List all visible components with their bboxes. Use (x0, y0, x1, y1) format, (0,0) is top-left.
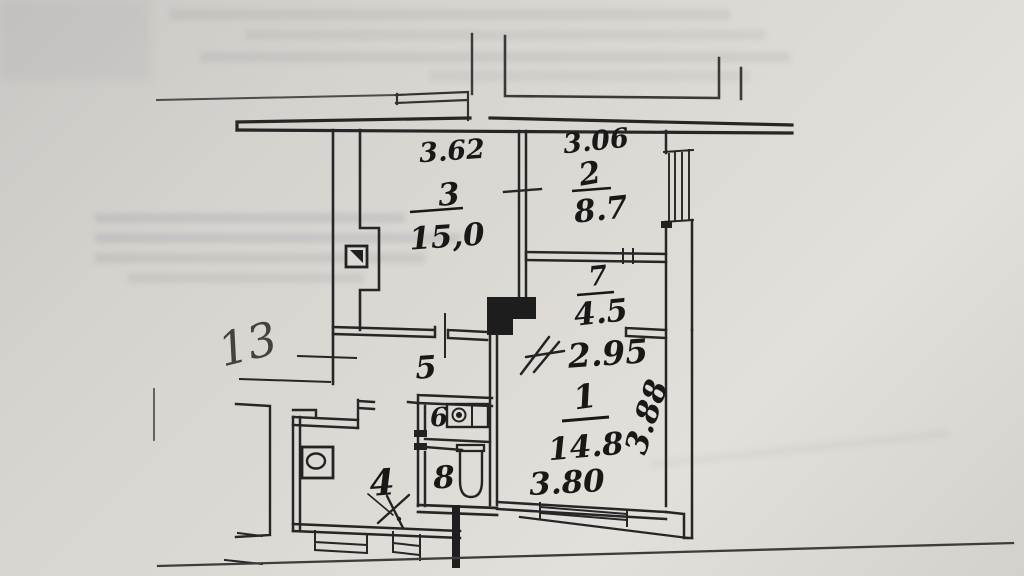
wall-left-outer-with-niche (360, 130, 379, 330)
room4-number: 4 (368, 461, 396, 505)
neighbour-hatch-left-1 (298, 356, 356, 358)
room3-area: 15,0 (408, 216, 486, 257)
room1-underline (562, 417, 609, 421)
outer-bottom-line (158, 543, 1013, 566)
room5-number: 5 (414, 349, 438, 386)
wall-top-inner (237, 130, 792, 133)
loggia-bracket (236, 404, 270, 537)
room1-area: 14.8 (547, 426, 625, 468)
room7-area: 4.5 (572, 292, 629, 333)
toilet-bowl (460, 451, 482, 497)
toilet-tank (457, 445, 484, 451)
wall-hatch-block-1 (414, 430, 427, 437)
room6-basin-dot (456, 412, 462, 418)
room2-area: 8.7 (571, 189, 630, 231)
wall-kitchen-top (293, 410, 358, 428)
window-top-left (396, 92, 468, 120)
dim-room1-width: 3.80 (528, 463, 606, 503)
wall-kitchen-left (293, 417, 300, 531)
wall-kitchen-bottom (293, 524, 460, 538)
wall-top-outer (237, 118, 792, 130)
dim-hall-width: 2.95 (565, 331, 649, 376)
wall-room1-corner (666, 512, 692, 538)
wall-junction-ink-blob (487, 297, 536, 335)
page-marker: 13 (213, 311, 283, 378)
strikethrough-scribble (521, 337, 564, 374)
window-room2 (664, 150, 693, 222)
neighbour-hatch-left-2 (240, 379, 330, 382)
kitchen-sink-bowl (307, 454, 325, 469)
wall-right-lower (666, 330, 692, 538)
wall-room3-room2 (519, 131, 526, 299)
wall-corridor-top-left (333, 327, 435, 337)
wall-right-block (661, 221, 672, 228)
room6-number: 6 (429, 403, 449, 434)
room8-number: 8 (431, 459, 455, 496)
wall-top-right-L (505, 36, 741, 99)
wall-room1-outer-edge (520, 517, 688, 538)
wall-room6-kitchen (418, 403, 425, 506)
room7-number: 7 (587, 260, 609, 293)
wall-corridor-top-right (448, 330, 487, 340)
entry-door-dot (397, 517, 401, 521)
wall-right-middle (666, 220, 692, 330)
room1-number: 1 (571, 376, 599, 418)
wall-kitchen-step (358, 400, 418, 428)
outer-faint-line-top-left (157, 95, 396, 100)
dim-room3-width: 3.62 (418, 134, 486, 170)
floor-plan-photo: 3.62 3.06 3 15,0 2 8.7 7 4.5 2.95 1 14.8… (0, 0, 1024, 576)
wall-room1-left (490, 335, 497, 505)
dim-tick-room3-room2 (504, 189, 541, 192)
floor-plan-drawing: 3.62 3.06 3 15,0 2 8.7 7 4.5 2.95 1 14.8… (0, 0, 1024, 576)
